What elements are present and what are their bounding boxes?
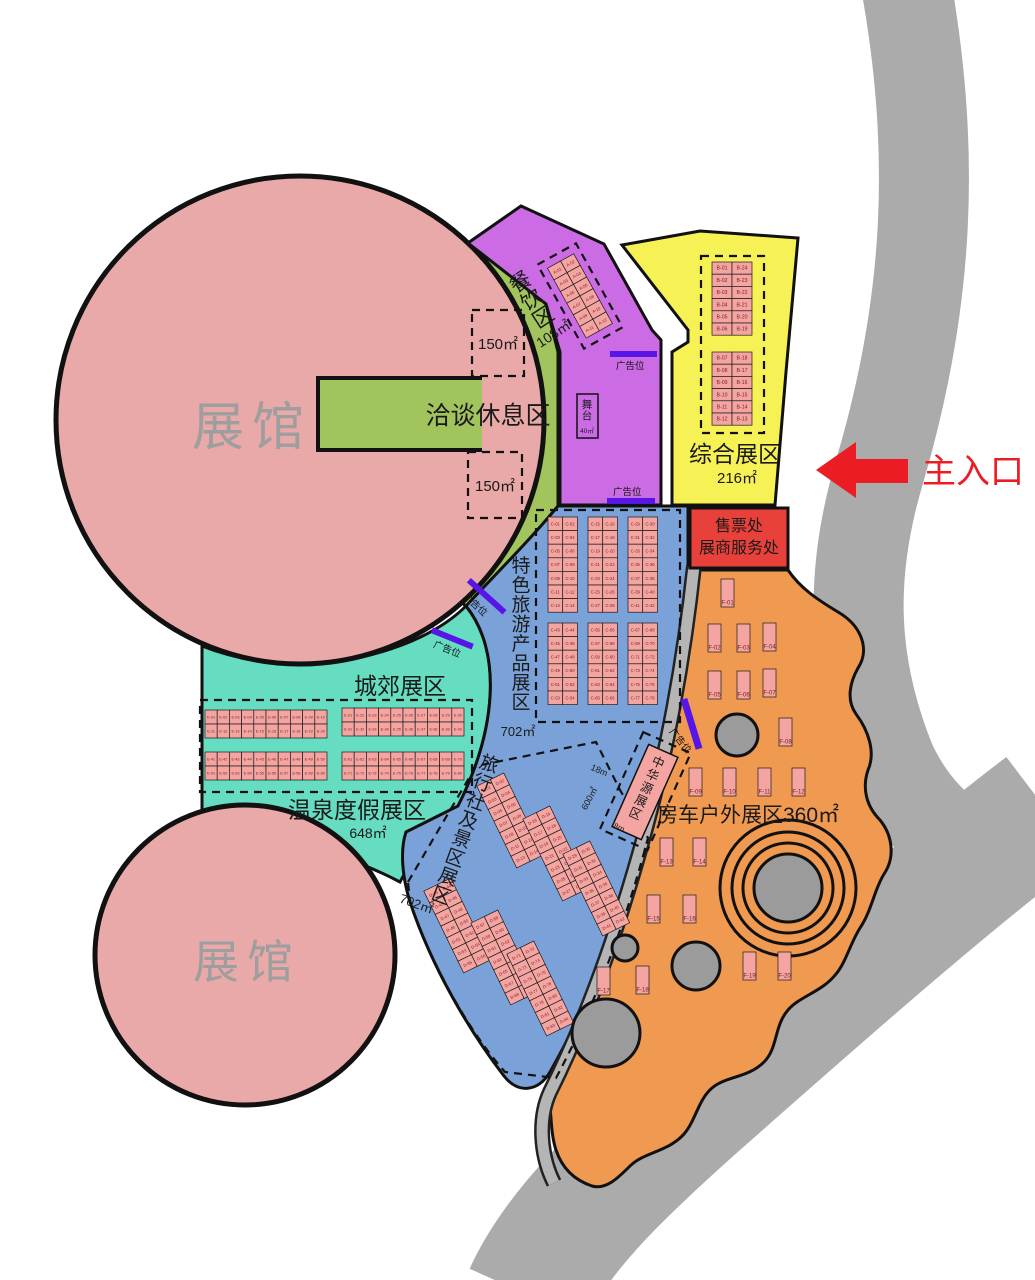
svg-text:C-29: C-29: [631, 521, 641, 526]
svg-text:C-34: C-34: [646, 549, 656, 554]
svg-text:E-44: E-44: [244, 758, 252, 762]
svg-text:C-30: C-30: [646, 521, 656, 526]
special-area: 702㎡: [501, 724, 536, 739]
svg-text:C-78: C-78: [646, 695, 656, 700]
svg-text:E-12: E-12: [219, 730, 227, 734]
svg-text:E-42: E-42: [219, 758, 227, 762]
svg-text:E-59: E-59: [305, 772, 313, 776]
svg-text:C-15: C-15: [591, 521, 601, 526]
svg-text:C-39: C-39: [631, 589, 641, 594]
svg-text:C-43: C-43: [551, 627, 561, 632]
rv-label: 房车户外展区360㎡: [657, 803, 839, 827]
svg-text:E-77: E-77: [417, 772, 425, 776]
svg-text:C-74: C-74: [646, 668, 656, 673]
svg-text:C-25: C-25: [591, 589, 601, 594]
svg-text:E-58: E-58: [292, 772, 300, 776]
svg-text:E-46: E-46: [268, 758, 276, 762]
negotiation-box1-area: 150㎡: [478, 336, 518, 353]
svg-text:E-49: E-49: [305, 758, 313, 762]
svg-text:F-04: F-04: [763, 645, 776, 651]
svg-text:C-44: C-44: [566, 627, 576, 632]
svg-text:C-17: C-17: [591, 535, 601, 540]
svg-text:C-65: C-65: [591, 695, 601, 700]
svg-text:E-72: E-72: [356, 772, 364, 776]
hall-top-label: 展馆: [192, 399, 312, 457]
svg-text:E-63: E-63: [368, 758, 376, 762]
stage-label: 舞台: [582, 399, 593, 422]
svg-text:B-13: B-13: [737, 417, 748, 423]
svg-text:E-10: E-10: [317, 716, 325, 720]
svg-text:C-76: C-76: [646, 682, 656, 687]
svg-text:E-26: E-26: [405, 714, 413, 718]
svg-text:E-30: E-30: [454, 714, 462, 718]
svg-text:F-15: F-15: [647, 917, 660, 923]
suburban-label: 城郊展区: [354, 673, 446, 699]
ticket-line2: 展商服务处: [699, 539, 779, 557]
special-label: 特色旅游产品展区: [511, 555, 530, 714]
svg-text:E-17: E-17: [280, 730, 288, 734]
svg-text:C-71: C-71: [631, 655, 641, 660]
svg-text:C-26: C-26: [606, 589, 616, 594]
svg-text:C-19: C-19: [591, 549, 601, 554]
tree-circle-2: [612, 935, 638, 961]
svg-text:E-01: E-01: [207, 716, 215, 720]
svg-text:C-77: C-77: [631, 695, 641, 700]
svg-text:B-08: B-08: [717, 368, 728, 374]
svg-text:B-12: B-12: [717, 417, 728, 423]
hotspring-area: 648㎡: [349, 825, 386, 841]
svg-text:C-63: C-63: [591, 682, 601, 687]
svg-text:C-21: C-21: [591, 562, 601, 567]
svg-text:C-24: C-24: [606, 576, 616, 581]
svg-text:E-16: E-16: [268, 730, 276, 734]
svg-text:F-16: F-16: [683, 917, 696, 923]
svg-text:E-06: E-06: [268, 716, 276, 720]
svg-text:F-14: F-14: [693, 860, 706, 866]
svg-text:C-69: C-69: [631, 641, 641, 646]
svg-text:E-07: E-07: [280, 716, 288, 720]
svg-text:C-41: C-41: [631, 603, 641, 608]
ticket-box: [690, 508, 788, 568]
svg-text:E-47: E-47: [280, 758, 288, 762]
svg-text:C-64: C-64: [606, 682, 616, 687]
svg-text:C-18: C-18: [606, 535, 616, 540]
svg-text:F-09: F-09: [689, 790, 702, 796]
svg-text:E-39: E-39: [442, 728, 450, 732]
svg-text:C-61: C-61: [591, 668, 601, 673]
svg-text:C-37: C-37: [631, 576, 641, 581]
booths-special: C-01C-02C-03C-04C-05C-06C-07C-08C-09C-10…: [548, 517, 657, 705]
site-plan-page: 展馆 展馆 洽谈休息区 150㎡ 150㎡ A-01A-02A-03A-04A-…: [0, 0, 1035, 1280]
svg-text:C-49: C-49: [551, 668, 561, 673]
svg-text:E-57: E-57: [280, 772, 288, 776]
svg-text:E-05: E-05: [256, 716, 264, 720]
svg-text:E-43: E-43: [231, 758, 239, 762]
svg-text:E-69: E-69: [442, 758, 450, 762]
svg-text:C-16: C-16: [606, 521, 616, 526]
comprehensive-label: 综合展区: [689, 441, 781, 467]
svg-text:E-23: E-23: [368, 714, 376, 718]
svg-text:E-27: E-27: [417, 714, 425, 718]
entrance-label: 主入口: [922, 453, 1024, 491]
svg-text:E-74: E-74: [381, 772, 389, 776]
svg-text:C-08: C-08: [566, 562, 576, 567]
svg-text:C-14: C-14: [566, 603, 576, 608]
svg-text:C-62: C-62: [606, 668, 616, 673]
svg-text:C-57: C-57: [591, 641, 601, 646]
svg-text:E-51: E-51: [207, 772, 215, 776]
svg-text:C-01: C-01: [551, 521, 561, 526]
svg-text:C-51: C-51: [551, 682, 561, 687]
svg-text:F-18: F-18: [636, 988, 649, 994]
svg-text:B-01: B-01: [717, 266, 728, 272]
svg-text:B-18: B-18: [737, 356, 748, 362]
svg-text:C-70: C-70: [646, 641, 656, 646]
svg-text:C-45: C-45: [551, 641, 561, 646]
svg-text:C-75: C-75: [631, 682, 641, 687]
svg-text:E-15: E-15: [256, 730, 264, 734]
svg-text:C-59: C-59: [591, 655, 601, 660]
svg-text:B-16: B-16: [737, 380, 748, 386]
svg-text:E-68: E-68: [429, 758, 437, 762]
tree-circle-3: [672, 942, 720, 990]
svg-text:C-40: C-40: [646, 589, 656, 594]
svg-text:C-48: C-48: [566, 655, 576, 660]
exhibition-site-plan: 展馆 展馆 洽谈休息区 150㎡ 150㎡ A-01A-02A-03A-04A-…: [0, 0, 1035, 1280]
svg-text:C-27: C-27: [591, 603, 601, 608]
svg-text:F-03: F-03: [737, 646, 750, 652]
svg-text:B-17: B-17: [737, 368, 748, 374]
svg-text:E-76: E-76: [405, 772, 413, 776]
svg-text:E-20: E-20: [317, 730, 325, 734]
svg-text:B-20: B-20: [737, 315, 748, 321]
svg-text:E-45: E-45: [256, 758, 264, 762]
svg-text:C-04: C-04: [566, 535, 576, 540]
svg-text:B-04: B-04: [717, 302, 728, 308]
svg-text:C-05: C-05: [551, 549, 561, 554]
tree-circle-1: [716, 714, 758, 756]
svg-text:E-73: E-73: [368, 772, 376, 776]
comprehensive-area: 216㎡: [717, 470, 757, 487]
svg-text:E-65: E-65: [393, 758, 401, 762]
svg-text:E-25: E-25: [393, 714, 401, 718]
svg-text:E-08: E-08: [292, 716, 300, 720]
road-right: [859, 0, 985, 860]
svg-text:E-66: E-66: [405, 758, 413, 762]
svg-text:C-56: C-56: [606, 627, 616, 632]
svg-text:E-36: E-36: [405, 728, 413, 732]
svg-text:E-28: E-28: [429, 714, 437, 718]
svg-text:F-07: F-07: [763, 691, 776, 697]
negotiation-label: 洽谈休息区: [425, 402, 550, 430]
svg-text:B-06: B-06: [717, 327, 728, 333]
svg-text:C-53: C-53: [551, 695, 561, 700]
svg-text:E-31: E-31: [344, 728, 352, 732]
svg-text:E-70: E-70: [454, 758, 462, 762]
svg-text:E-11: E-11: [207, 730, 215, 734]
svg-text:C-66: C-66: [606, 695, 616, 700]
svg-text:F-20: F-20: [778, 974, 791, 980]
svg-text:E-67: E-67: [417, 758, 425, 762]
svg-text:E-21: E-21: [344, 714, 352, 718]
svg-text:C-32: C-32: [646, 535, 656, 540]
svg-text:E-29: E-29: [442, 714, 450, 718]
svg-text:F-08: F-08: [779, 740, 792, 746]
svg-text:E-32: E-32: [356, 728, 364, 732]
svg-text:B-15: B-15: [737, 392, 748, 398]
svg-text:C-28: C-28: [606, 603, 616, 608]
ad-bar-stage-top: [610, 351, 657, 357]
svg-text:C-35: C-35: [631, 562, 641, 567]
svg-text:C-50: C-50: [566, 668, 576, 673]
svg-text:E-80: E-80: [454, 772, 462, 776]
ticket-line1: 售票处: [715, 517, 763, 535]
svg-text:B-07: B-07: [717, 356, 728, 362]
svg-text:F-12: F-12: [792, 790, 805, 796]
svg-text:C-03: C-03: [551, 535, 561, 540]
svg-text:F-05: F-05: [708, 693, 721, 699]
svg-text:E-24: E-24: [381, 714, 389, 718]
svg-text:E-61: E-61: [344, 758, 352, 762]
svg-text:E-37: E-37: [417, 728, 425, 732]
svg-text:E-38: E-38: [429, 728, 437, 732]
hall-bottom-label: 展馆: [193, 936, 301, 988]
svg-text:E-62: E-62: [356, 758, 364, 762]
svg-text:C-07: C-07: [551, 562, 561, 567]
svg-text:C-33: C-33: [631, 549, 641, 554]
svg-text:E-34: E-34: [381, 728, 389, 732]
svg-text:B-22: B-22: [737, 290, 748, 296]
svg-text:C-02: C-02: [566, 521, 576, 526]
tree-circle-4: [572, 999, 640, 1067]
svg-text:E-54: E-54: [244, 772, 252, 776]
svg-text:C-46: C-46: [566, 641, 576, 646]
svg-text:B-11: B-11: [717, 405, 728, 411]
svg-text:E-33: E-33: [368, 728, 376, 732]
svg-text:F-19: F-19: [743, 974, 756, 980]
ad-label-stage-top: 广告位: [616, 360, 645, 372]
ad-label-stage-bottom: 广告位: [613, 486, 642, 498]
svg-text:E-19: E-19: [305, 730, 313, 734]
svg-text:C-42: C-42: [646, 603, 656, 608]
svg-text:C-23: C-23: [591, 576, 601, 581]
svg-text:E-13: E-13: [231, 730, 239, 734]
svg-text:C-72: C-72: [646, 655, 656, 660]
svg-text:C-36: C-36: [646, 562, 656, 567]
svg-text:C-73: C-73: [631, 668, 641, 673]
svg-text:E-52: E-52: [219, 772, 227, 776]
svg-text:B-14: B-14: [737, 405, 748, 411]
svg-text:B-10: B-10: [717, 392, 728, 398]
svg-text:E-79: E-79: [442, 772, 450, 776]
svg-text:C-67: C-67: [631, 627, 641, 632]
svg-text:C-52: C-52: [566, 682, 576, 687]
svg-text:B-02: B-02: [717, 278, 728, 284]
svg-text:C-13: C-13: [551, 603, 561, 608]
svg-text:E-64: E-64: [381, 758, 389, 762]
svg-text:E-03: E-03: [231, 716, 239, 720]
svg-text:B-05: B-05: [717, 315, 728, 321]
stage-area: 40㎡: [580, 426, 594, 435]
svg-text:C-55: C-55: [591, 627, 601, 632]
svg-text:E-78: E-78: [429, 772, 437, 776]
svg-text:E-75: E-75: [393, 772, 401, 776]
svg-text:C-09: C-09: [551, 576, 561, 581]
svg-text:C-68: C-68: [646, 627, 656, 632]
svg-text:C-22: C-22: [606, 562, 616, 567]
svg-text:E-02: E-02: [219, 716, 227, 720]
svg-text:E-48: E-48: [292, 758, 300, 762]
svg-text:C-60: C-60: [606, 655, 616, 660]
svg-text:C-58: C-58: [606, 641, 616, 646]
hotspring-label: 温泉度假展区: [288, 797, 426, 823]
svg-text:E-41: E-41: [207, 758, 215, 762]
svg-text:B-09: B-09: [717, 380, 728, 386]
svg-text:E-22: E-22: [356, 714, 364, 718]
svg-text:E-40: E-40: [454, 728, 462, 732]
svg-text:E-35: E-35: [393, 728, 401, 732]
svg-text:C-11: C-11: [551, 589, 560, 594]
svg-text:E-14: E-14: [244, 730, 252, 734]
negotiation-box2-area: 150㎡: [475, 478, 515, 495]
svg-text:F-17: F-17: [597, 989, 610, 995]
svg-text:C-54: C-54: [566, 695, 576, 700]
svg-text:C-10: C-10: [566, 576, 576, 581]
svg-text:C-31: C-31: [631, 535, 641, 540]
svg-text:E-71: E-71: [344, 772, 352, 776]
svg-text:E-60: E-60: [317, 772, 325, 776]
svg-text:E-18: E-18: [292, 730, 300, 734]
svg-text:C-47: C-47: [551, 655, 561, 660]
svg-text:E-50: E-50: [317, 758, 325, 762]
svg-text:B-03: B-03: [717, 290, 728, 296]
svg-text:F-13: F-13: [660, 860, 673, 866]
svg-text:E-55: E-55: [256, 772, 264, 776]
svg-text:F-01: F-01: [721, 601, 734, 607]
svg-text:C-12: C-12: [566, 589, 576, 594]
svg-text:F-11: F-11: [759, 790, 772, 796]
svg-text:B-23: B-23: [737, 278, 748, 284]
svg-text:E-09: E-09: [305, 716, 313, 720]
svg-text:C-38: C-38: [646, 576, 656, 581]
svg-text:B-19: B-19: [737, 327, 748, 333]
svg-text:E-53: E-53: [231, 772, 239, 776]
ad-bar-stage-bottom: [607, 498, 655, 504]
svg-text:F-10: F-10: [723, 790, 736, 796]
svg-text:C-06: C-06: [566, 549, 576, 554]
svg-text:F-06: F-06: [737, 693, 750, 699]
svg-text:C-20: C-20: [606, 549, 616, 554]
svg-text:B-21: B-21: [737, 302, 748, 308]
svg-text:F-02: F-02: [708, 646, 721, 652]
svg-text:E-56: E-56: [268, 772, 276, 776]
svg-text:E-04: E-04: [244, 716, 252, 720]
svg-text:B-24: B-24: [737, 266, 748, 272]
